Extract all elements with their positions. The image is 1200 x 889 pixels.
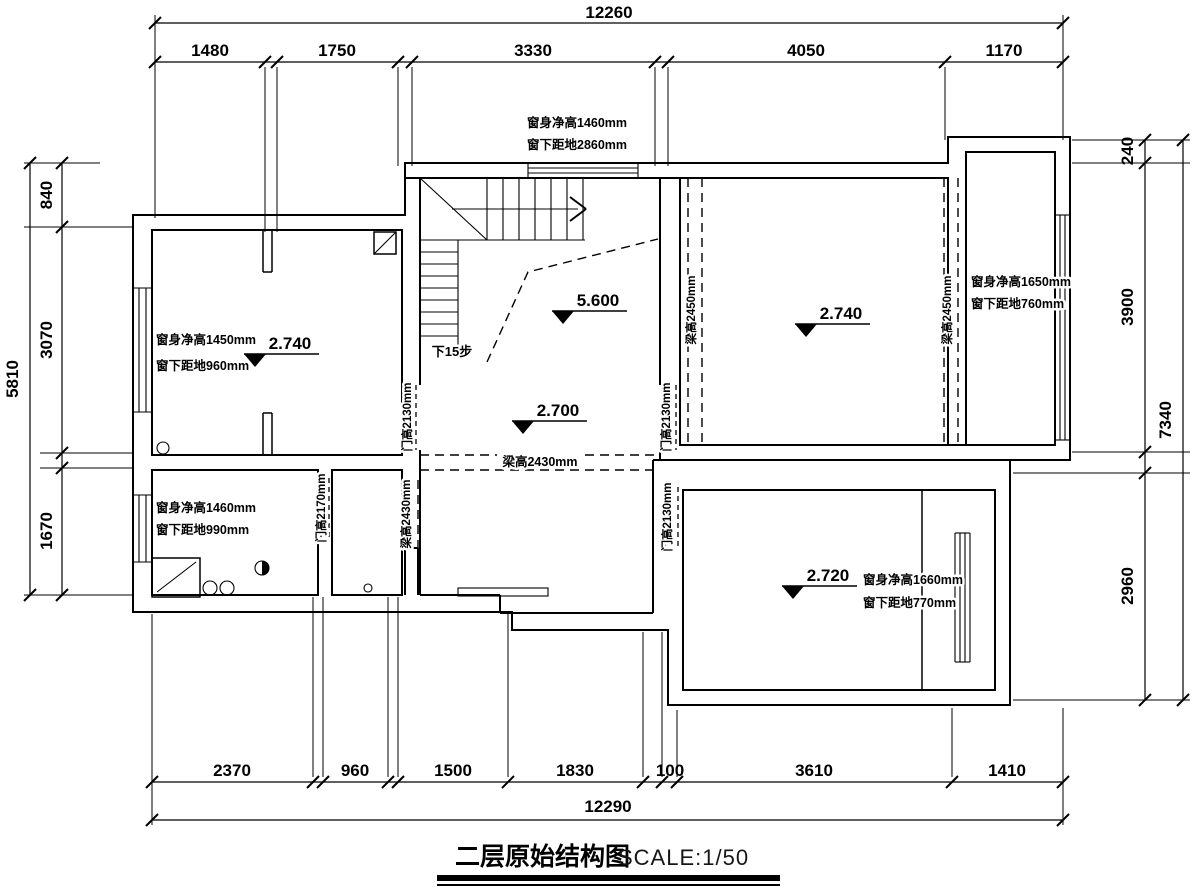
floor-plan-svg: 下15步 梁高2430mm 梁高2430mm 梁高2450mm 梁高2450mm… [0,0,1200,889]
beam-label-closet: 梁高2430mm [399,479,413,549]
floor-plan-canvas: 下15步 梁高2430mm 梁高2430mm 梁高2450mm 梁高2450mm… [0,0,1200,889]
elevation-marker-hall: 2.700 [512,401,587,434]
dim-top-seg: 4050 [787,41,825,60]
beam-label-right-room-left: 梁高2450mm [684,275,698,345]
dim-left-total: 5810 [3,360,22,398]
drawing-title: 二层原始结构图 [455,843,630,871]
dimension-chain-bottom: 2370 960 1500 1830 100 3610 1410 12290 [146,597,1069,826]
window-label: 窗身净高1460mm [156,500,256,515]
window-label: 窗下距地770mm [863,595,956,610]
floor-drain-fill [262,561,269,575]
dim-top-total: 12260 [585,3,632,22]
dim-bottom-seg: 100 [656,761,684,780]
window-label: 窗身净高1450mm [156,332,256,347]
dim-left-seg: 3070 [37,321,56,359]
door-label-hall-right: 门高2130mm [659,382,673,451]
elevation-value: 2.740 [269,334,312,353]
dim-bottom-seg: 960 [341,761,369,780]
dim-right-seg: 3900 [1118,288,1137,326]
dim-left-seg: 1670 [37,512,56,550]
window-label: 窗下距地960mm [156,358,249,373]
staircase: 下15步 [420,178,658,362]
door-label-bottom-right-room: 门高2130mm [660,482,674,551]
exterior-walls [133,137,1070,705]
elevation-marker-bottom-right-room: 2.720 [782,566,857,599]
window-label: 窗身净高1650mm [971,274,1071,289]
dim-bottom-seg: 1830 [556,761,594,780]
dim-right-seg: 2960 [1118,567,1137,605]
window-label: 窗下距地760mm [971,296,1064,311]
title-block: 二层原始结构图 SCALE:1/50 [437,843,780,886]
dim-top-seg: 1480 [191,41,229,60]
sink-basin [220,581,234,595]
elevation-value: 2.720 [807,566,850,585]
window-label: 窗下距地990mm [156,522,249,537]
dim-bottom-seg: 1410 [988,761,1026,780]
door-openings: 门高2130mm 门高2130mm 门高2170mm 门高2130mm [314,382,678,551]
title-underline-thin [437,884,780,886]
elevation-value: 2.740 [820,304,863,323]
sink-basin [203,581,217,595]
elevation-marker-right-room: 2.740 [795,304,870,337]
dimension-chain-left: 840 3070 1670 5810 [3,157,133,601]
dim-top-seg: 1750 [318,41,356,60]
dim-bottom-seg: 2370 [213,761,251,780]
window-annotations: 窗身净高1460mm 窗下距地2860mm 窗身净高1450mm 窗下距地960… [156,115,1071,610]
window-label: 窗下距地2860mm [527,137,627,152]
dim-bottom-total: 12290 [584,797,631,816]
window-label: 窗身净高1460mm [527,115,627,130]
bathroom-fixtures [152,442,548,597]
dim-right-total: 7340 [1156,401,1175,439]
elevation-marker-stairwell: 5.600 [552,291,627,324]
dim-top-seg: 3330 [514,41,552,60]
elevation-value: 2.700 [537,401,580,420]
dim-bottom-seg: 3610 [795,761,833,780]
pipe-riser [157,442,169,454]
dimension-chain-right: 240 3900 2960 7340 [1013,134,1190,706]
dim-left-seg: 840 [37,181,56,209]
dim-bottom-seg: 1500 [434,761,472,780]
title-underline-thick [437,875,780,881]
dim-right-seg: 240 [1118,137,1137,165]
door-label-hall-left: 门高2130mm [400,382,414,451]
small-drain [364,584,372,592]
stair-steps-label: 下15步 [432,344,472,359]
beam-label-right-room-right: 梁高2450mm [940,275,954,345]
door-label-bathroom: 门高2170mm [314,473,328,542]
elevation-value: 5.600 [577,291,620,310]
window-symbols [133,163,1070,662]
beam-lines: 梁高2430mm 梁高2430mm 梁高2450mm 梁高2450mm [399,178,958,550]
beam-label-hall: 梁高2430mm [501,454,577,469]
drawing-scale: SCALE:1/50 [618,845,749,870]
window-label: 窗身净高1660mm [863,572,963,587]
dim-top-seg: 1170 [986,41,1023,60]
